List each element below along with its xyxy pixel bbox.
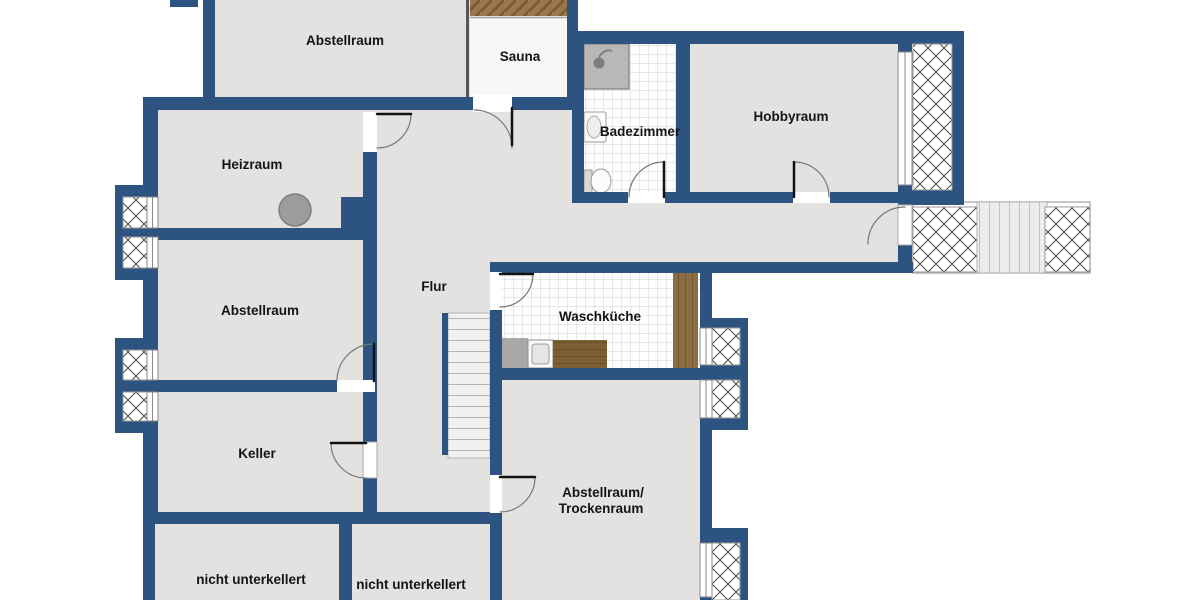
wall bbox=[143, 97, 473, 110]
room-nicht-unterkellert-links-floor bbox=[155, 524, 339, 600]
boiler bbox=[279, 194, 311, 226]
room-label-waschkueche: Waschküche bbox=[559, 309, 642, 324]
exterior-stairs bbox=[913, 202, 1090, 273]
room-label-sauna: Sauna bbox=[500, 49, 541, 64]
room-label-abstellraum-trockenraum-line1: Abstellraum/ bbox=[562, 485, 644, 500]
wall bbox=[572, 31, 964, 44]
room-label-abstellraum-left: Abstellraum bbox=[221, 303, 299, 318]
wall bbox=[700, 365, 740, 380]
laundry-gray-counter bbox=[502, 338, 528, 368]
window bbox=[147, 197, 158, 228]
wall bbox=[952, 31, 964, 205]
wall bbox=[740, 528, 748, 600]
window bbox=[700, 380, 712, 418]
room-label-abstellraum-trockenraum-line2: Trockenraum bbox=[559, 501, 644, 516]
room-label-nicht-unterkellert-mitte: nicht unterkellert bbox=[356, 577, 466, 592]
wall bbox=[572, 192, 628, 203]
room-label-abstellraum-top: Abstellraum bbox=[306, 33, 384, 48]
lightwell bbox=[712, 328, 740, 365]
wall bbox=[898, 44, 912, 52]
wall bbox=[898, 245, 912, 273]
lightwell bbox=[123, 197, 147, 228]
exterior-stairs-steps bbox=[977, 202, 1047, 273]
wall bbox=[143, 380, 337, 392]
window bbox=[147, 350, 158, 380]
room-label-heizraum: Heizraum bbox=[222, 157, 283, 172]
wood-cabinet bbox=[673, 268, 698, 368]
wall bbox=[115, 185, 123, 280]
lightwell bbox=[712, 380, 740, 418]
exterior-stairs-hatch-right bbox=[1045, 207, 1090, 272]
wall bbox=[170, 0, 198, 7]
room-corridor-floor bbox=[578, 203, 913, 262]
window bbox=[700, 328, 712, 365]
wall bbox=[203, 0, 215, 100]
wall bbox=[363, 478, 377, 512]
chimney-block bbox=[341, 197, 377, 240]
window bbox=[147, 237, 158, 268]
wall bbox=[115, 338, 123, 433]
wall bbox=[143, 512, 155, 600]
wall bbox=[700, 273, 712, 328]
wall bbox=[490, 368, 712, 380]
wall bbox=[700, 262, 913, 273]
room-label-nicht-unterkellert-links: nicht unterkellert bbox=[196, 572, 306, 587]
lightwell bbox=[712, 543, 740, 600]
floor-plan-svg: Abstellraum Sauna Badezimmer Hobbyraum H… bbox=[0, 0, 1200, 600]
window bbox=[898, 52, 912, 185]
room-floors bbox=[155, 0, 913, 600]
wall bbox=[830, 192, 898, 203]
washing-machine-door bbox=[532, 344, 549, 364]
wall bbox=[490, 262, 712, 273]
window bbox=[700, 543, 712, 597]
interior-stairs bbox=[448, 313, 490, 458]
lightwell bbox=[123, 392, 147, 421]
room-abstellraum-top-floor bbox=[215, 0, 470, 97]
wall bbox=[143, 110, 158, 185]
shower-head-icon bbox=[594, 58, 605, 69]
lightwell bbox=[123, 350, 147, 380]
wall bbox=[339, 524, 352, 600]
wall bbox=[700, 418, 712, 543]
stairs-wall bbox=[442, 313, 448, 455]
room-flur-north-floor bbox=[377, 110, 578, 273]
wall bbox=[143, 433, 158, 512]
floor-plan: Abstellraum Sauna Badezimmer Hobbyraum H… bbox=[0, 0, 1200, 600]
wall bbox=[143, 280, 158, 338]
lightwell bbox=[913, 44, 952, 190]
wall bbox=[665, 192, 793, 203]
toilet bbox=[591, 169, 611, 193]
sauna-bench bbox=[470, 0, 567, 16]
wall bbox=[572, 44, 584, 203]
exterior-stairs-hatch-left bbox=[913, 207, 977, 272]
room-label-keller: Keller bbox=[238, 446, 276, 461]
wall bbox=[490, 310, 502, 475]
window bbox=[147, 392, 158, 421]
wall bbox=[143, 512, 502, 524]
wall bbox=[490, 513, 502, 600]
interior-stairs-treads bbox=[448, 313, 490, 458]
laundry-counter bbox=[553, 340, 607, 368]
wall bbox=[363, 152, 377, 442]
room-label-flur: Flur bbox=[421, 279, 447, 294]
room-label-badezimmer: Badezimmer bbox=[600, 124, 681, 139]
room-label-hobbyraum: Hobbyraum bbox=[753, 109, 828, 124]
wall bbox=[676, 44, 690, 192]
sauna-partition-wall bbox=[466, 0, 469, 97]
wall bbox=[740, 318, 748, 430]
lightwell bbox=[123, 237, 147, 268]
